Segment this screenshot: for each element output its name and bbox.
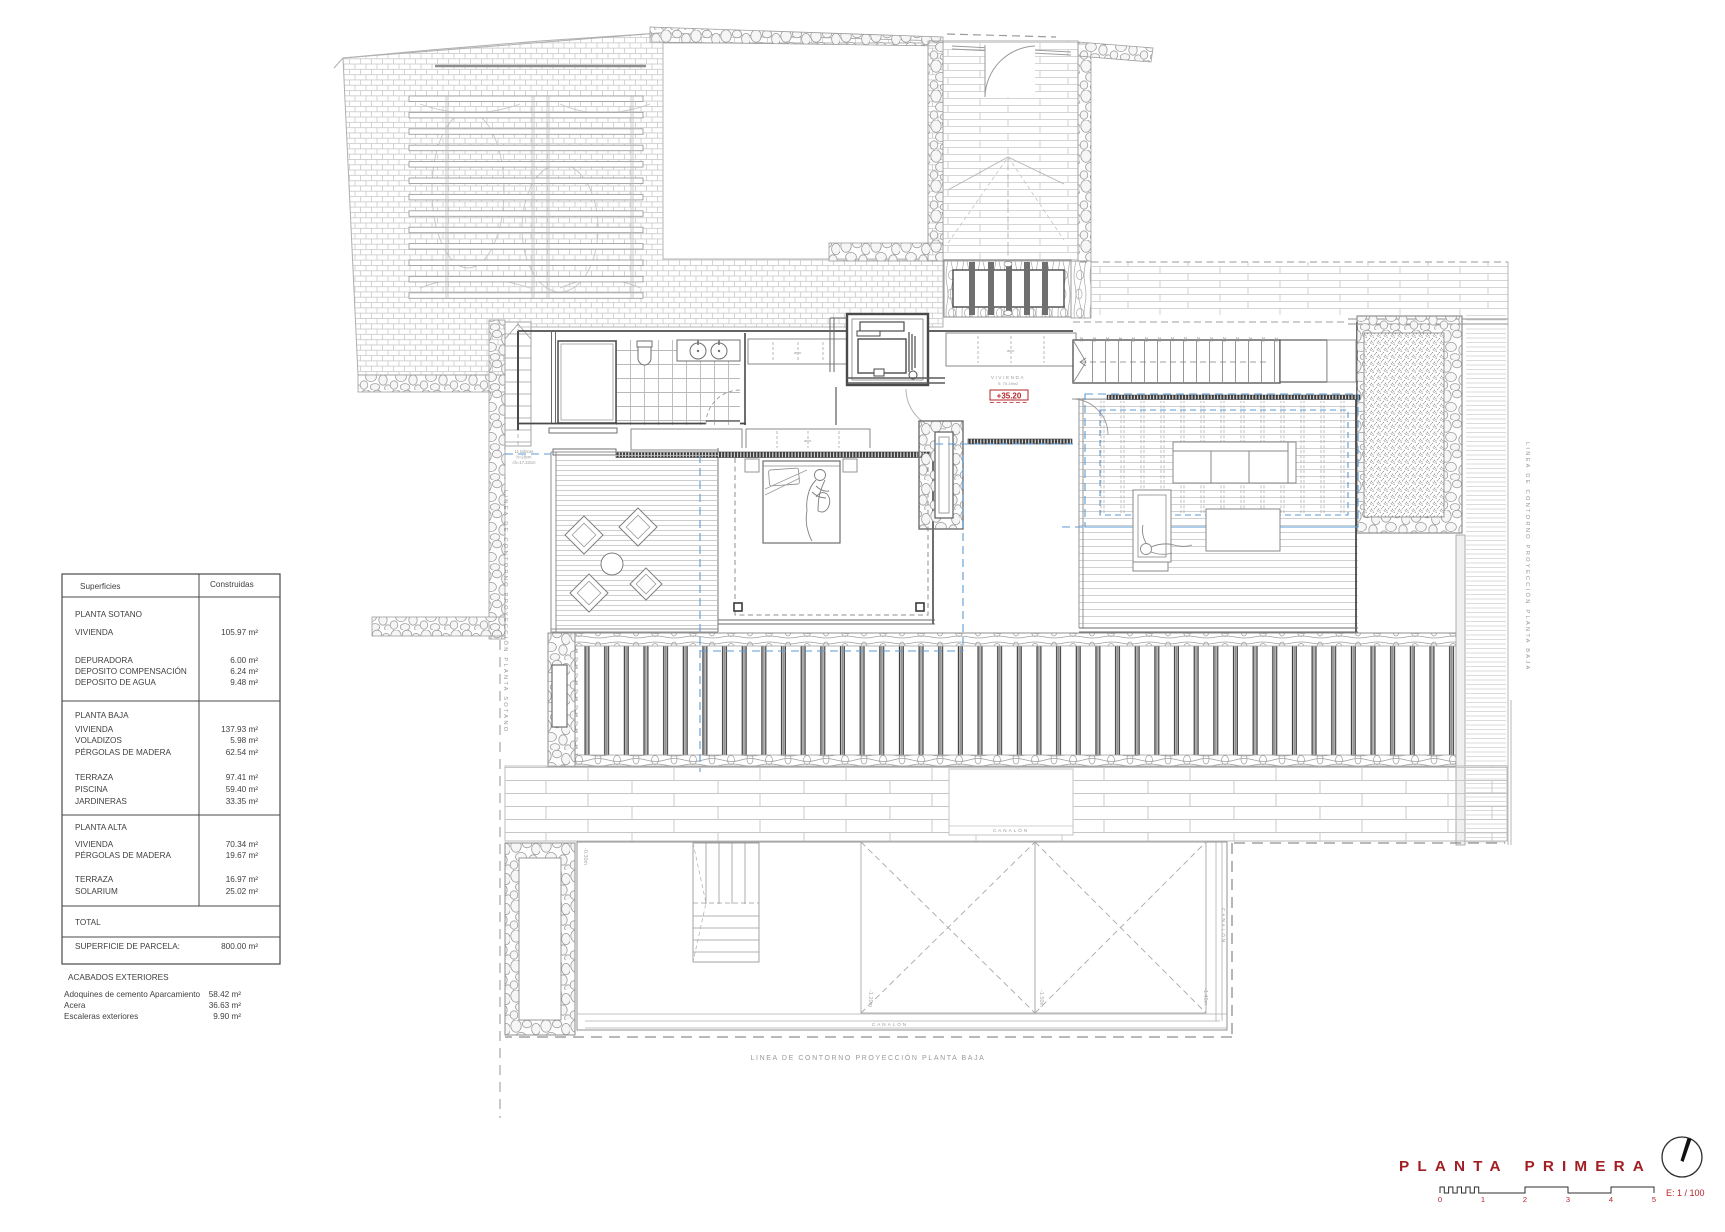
- svg-text:28: 28: [1157, 337, 1162, 342]
- svg-text:E: 1 / 100: E: 1 / 100: [1666, 1188, 1705, 1198]
- svg-text:-1.20m: -1.20m: [867, 990, 873, 1008]
- svg-text:LINEA DE CONTORNO PROYECCIÓN P: LINEA DE CONTORNO PROYECCIÓN PLANTA SOTA…: [502, 490, 509, 733]
- svg-text:6.24 m²: 6.24 m²: [230, 667, 258, 676]
- svg-text:62.54 m²: 62.54 m²: [226, 748, 259, 757]
- svg-text:CANALÓN: CANALÓN: [872, 1021, 908, 1027]
- svg-text:S: 70.19m2: S: 70.19m2: [998, 381, 1019, 386]
- svg-text:33: 33: [1092, 337, 1097, 342]
- svg-text:800.00 m²: 800.00 m²: [221, 942, 258, 951]
- svg-text:22: 22: [1235, 337, 1240, 342]
- svg-text:PLANTA BAJA: PLANTA BAJA: [75, 711, 129, 720]
- svg-text:20: 20: [1261, 337, 1266, 342]
- svg-text:h=28cm: h=28cm: [516, 455, 532, 460]
- svg-text:2: 2: [1523, 1195, 1527, 1204]
- svg-text:-1.50m: -1.50m: [1038, 990, 1044, 1008]
- svg-text:9.48 m²: 9.48 m²: [230, 678, 258, 687]
- svg-text:TERRAZA: TERRAZA: [75, 773, 114, 782]
- svg-text:PLANTA SOTANO: PLANTA SOTANO: [75, 610, 142, 619]
- svg-text:16.97 m²: 16.97 m²: [226, 875, 259, 884]
- svg-text:4: 4: [1609, 1195, 1613, 1204]
- svg-text:3: 3: [1566, 1195, 1570, 1204]
- svg-text:105.97 m²: 105.97 m²: [221, 628, 258, 637]
- svg-text:97.41 m²: 97.41 m²: [226, 773, 259, 782]
- svg-text:ch=17.23cm: ch=17.23cm: [513, 460, 536, 465]
- svg-text:19.67 m²: 19.67 m²: [226, 851, 259, 860]
- svg-text:33.35 m²: 33.35 m²: [226, 797, 259, 806]
- svg-text:32: 32: [1105, 337, 1110, 342]
- svg-text:0: 0: [1438, 1195, 1442, 1204]
- svg-text:VIVIENDA: VIVIENDA: [75, 725, 114, 734]
- svg-text:SOLARIUM: SOLARIUM: [75, 887, 118, 896]
- svg-text:36.63 m²: 36.63 m²: [209, 1001, 242, 1010]
- svg-text:DEPURADORA: DEPURADORA: [75, 656, 133, 665]
- svg-text:Adoquines de cemento Aparcamie: Adoquines de cemento Aparcamiento: [64, 990, 201, 999]
- svg-text:TOTAL: TOTAL: [75, 918, 101, 927]
- svg-text:26: 26: [1183, 337, 1188, 342]
- svg-text:34: 34: [1079, 337, 1084, 342]
- svg-text:VIVIENDA: VIVIENDA: [991, 375, 1025, 380]
- svg-text:SUPERFICIE DE PARCELA:: SUPERFICIE DE PARCELA:: [75, 942, 180, 951]
- svg-text:VIVIENDA: VIVIENDA: [75, 628, 114, 637]
- svg-text:PLANTA ALTA: PLANTA ALTA: [75, 823, 127, 832]
- svg-text:+35.20: +35.20: [997, 392, 1022, 401]
- svg-text:70.34 m²: 70.34 m²: [226, 840, 259, 849]
- svg-text:DEPOSITO DE AGUA: DEPOSITO DE AGUA: [75, 678, 156, 687]
- svg-text:arm.: arm.: [804, 438, 812, 443]
- svg-text:31: 31: [1118, 337, 1123, 342]
- svg-text:1: 1: [1481, 1195, 1485, 1204]
- svg-text:JARDINERAS: JARDINERAS: [75, 797, 127, 806]
- svg-text:11 tabicas: 11 tabicas: [515, 449, 534, 454]
- svg-text:29: 29: [1144, 337, 1149, 342]
- svg-text:5.98 m²: 5.98 m²: [230, 736, 258, 745]
- svg-text:Construidas: Construidas: [210, 580, 254, 589]
- svg-text:PISCINA: PISCINA: [75, 785, 108, 794]
- svg-text:9.90 m²: 9.90 m²: [213, 1012, 241, 1021]
- svg-text:-0.30m: -0.30m: [582, 848, 588, 866]
- svg-text:19: 19: [1274, 337, 1279, 342]
- svg-text:VOLADIZOS: VOLADIZOS: [75, 736, 122, 745]
- svg-text:-1.45m: -1.45m: [1202, 988, 1208, 1006]
- svg-text:21: 21: [1248, 337, 1253, 342]
- svg-text:25: 25: [1196, 337, 1201, 342]
- svg-text:24: 24: [1209, 337, 1214, 342]
- svg-text:PLANTA PRIMERA: PLANTA PRIMERA: [1399, 1158, 1652, 1175]
- svg-text:137.93 m²: 137.93 m²: [221, 725, 258, 734]
- svg-text:5: 5: [1652, 1195, 1656, 1204]
- svg-text:CANALÓN: CANALÓN: [993, 827, 1029, 833]
- svg-text:VIVIENDA: VIVIENDA: [75, 840, 114, 849]
- svg-text:ACABADOS EXTERIORES: ACABADOS EXTERIORES: [68, 973, 169, 982]
- svg-text:58.42 m²: 58.42 m²: [209, 990, 242, 999]
- svg-text:PÉRGOLAS DE MADERA: PÉRGOLAS DE MADERA: [75, 850, 172, 860]
- svg-text:CANALÓN: CANALÓN: [1221, 908, 1227, 944]
- svg-text:arm.: arm.: [794, 350, 802, 355]
- svg-text:Superficies: Superficies: [80, 582, 121, 591]
- svg-text:PÉRGOLAS DE MADERA: PÉRGOLAS DE MADERA: [75, 747, 172, 757]
- svg-text:25.02 m²: 25.02 m²: [226, 887, 259, 896]
- svg-text:27: 27: [1170, 337, 1175, 342]
- svg-text:Acera: Acera: [64, 1001, 86, 1010]
- svg-text:6.00 m²: 6.00 m²: [230, 656, 258, 665]
- svg-text:59.40 m²: 59.40 m²: [226, 785, 259, 794]
- svg-text:LINEA DE CONTORNO PROYECCIÓN P: LINEA DE CONTORNO PROYECCIÓN PLANTA BAJA: [1524, 442, 1531, 672]
- svg-text:TERRAZA: TERRAZA: [75, 875, 114, 884]
- svg-text:LINEA DE CONTORNO PROYECCIÓN P: LINEA DE CONTORNO PROYECCIÓN PLANTA BAJA: [751, 1053, 986, 1062]
- svg-text:30: 30: [1131, 337, 1136, 342]
- svg-text:arm.: arm.: [1007, 348, 1015, 353]
- svg-text:23: 23: [1222, 337, 1227, 342]
- svg-text:Escaleras exteriores: Escaleras exteriores: [64, 1012, 138, 1021]
- svg-text:DEPOSITO COMPENSACIÓN: DEPOSITO COMPENSACIÓN: [75, 666, 187, 676]
